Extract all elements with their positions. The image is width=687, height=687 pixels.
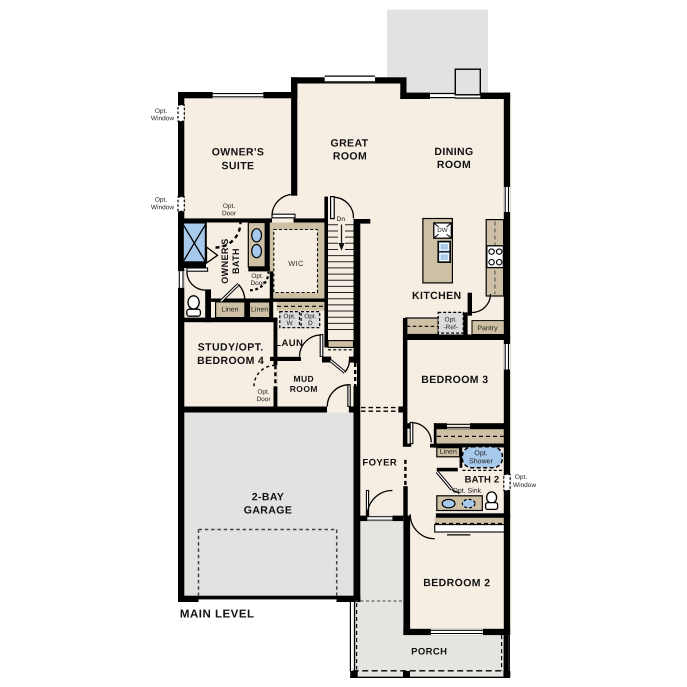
svg-text:BATH 2: BATH 2 xyxy=(465,474,500,485)
svg-text:2-BAY: 2-BAY xyxy=(252,491,285,503)
svg-text:Opt.: Opt. xyxy=(474,450,487,457)
svg-text:WIC: WIC xyxy=(288,259,304,268)
svg-text:Window: Window xyxy=(151,204,174,211)
svg-text:Opt.: Opt. xyxy=(251,273,263,280)
svg-text:Opt.: Opt. xyxy=(445,316,457,323)
svg-text:Linen: Linen xyxy=(221,306,238,313)
svg-text:Door: Door xyxy=(256,396,271,403)
svg-text:MUD: MUD xyxy=(294,374,315,384)
svg-text:GARAGE: GARAGE xyxy=(244,504,293,516)
svg-text:OWNER'S: OWNER'S xyxy=(220,238,230,283)
svg-text:MAIN LEVEL: MAIN LEVEL xyxy=(180,608,255,620)
svg-text:KITCHEN: KITCHEN xyxy=(412,290,461,302)
svg-text:-Ref-: -Ref- xyxy=(443,324,457,331)
svg-text:Opt.: Opt. xyxy=(257,389,269,396)
svg-text:SUITE: SUITE xyxy=(222,160,255,172)
svg-text:ROOM: ROOM xyxy=(333,150,367,162)
svg-text:BEDROOM 4: BEDROOM 4 xyxy=(197,355,264,367)
svg-text:W: W xyxy=(287,320,294,327)
svg-text:DINING: DINING xyxy=(434,146,473,158)
svg-text:Door: Door xyxy=(250,280,265,287)
svg-text:DW: DW xyxy=(437,227,447,234)
svg-text:STUDY/OPT.: STUDY/OPT. xyxy=(198,341,264,353)
svg-text:Opt. Sink: Opt. Sink xyxy=(452,488,481,495)
svg-text:Door: Door xyxy=(222,210,237,217)
svg-text:Linen: Linen xyxy=(251,306,268,313)
svg-text:Opt.: Opt. xyxy=(515,474,527,481)
svg-text:Shower: Shower xyxy=(469,458,493,465)
svg-text:Opt.: Opt. xyxy=(223,203,235,210)
svg-text:Linen: Linen xyxy=(440,449,457,456)
svg-text:Opt.: Opt. xyxy=(155,108,167,115)
svg-text:Window: Window xyxy=(151,115,174,122)
svg-text:Window: Window xyxy=(513,482,536,489)
svg-text:FOYER: FOYER xyxy=(362,457,397,468)
svg-text:BEDROOM 2: BEDROOM 2 xyxy=(423,577,490,589)
svg-text:BEDROOM 3: BEDROOM 3 xyxy=(421,374,488,386)
svg-text:Dn: Dn xyxy=(337,216,346,223)
svg-text:Pantry: Pantry xyxy=(477,325,498,332)
svg-text:BATH: BATH xyxy=(231,248,241,274)
svg-text:ROOM: ROOM xyxy=(437,159,471,171)
svg-text:PORCH: PORCH xyxy=(411,646,447,657)
svg-text:ROOM: ROOM xyxy=(290,384,318,394)
svg-text:Opt.: Opt. xyxy=(155,197,167,204)
svg-text:LAUN: LAUN xyxy=(275,338,303,349)
svg-text:OWNER'S: OWNER'S xyxy=(212,146,265,158)
svg-text:GREAT: GREAT xyxy=(331,137,369,149)
svg-text:D: D xyxy=(308,320,313,327)
